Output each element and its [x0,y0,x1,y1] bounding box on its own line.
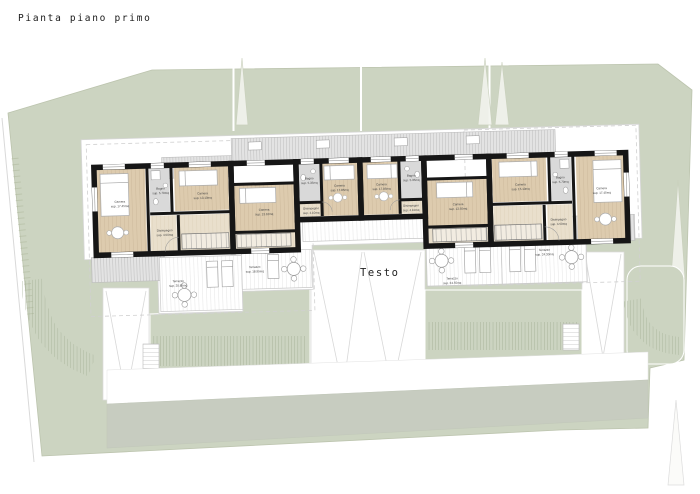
exterior-stairs [563,324,579,350]
chair [438,248,444,254]
chair [182,302,188,308]
chair [300,266,306,272]
lounger [524,243,536,271]
chair [281,266,287,272]
toilet [563,187,568,194]
window [329,158,349,164]
terrace-e: Terrazzo sup. 24.55mq [426,242,502,286]
exterior-stairs [143,344,159,370]
room-area: sup. 5.35mq [403,178,420,182]
room-area: sup. 4.50mq [156,233,173,237]
stair-flight [182,233,229,249]
skylight [316,140,329,148]
window [591,238,613,244]
room-area: sup. 17.45mq [593,190,612,195]
center-placeholder-label: Testo [360,267,400,279]
table [178,288,191,301]
floor-plan-canvas: Terrazzo sup. 20.85mq Terrazzo sup. 18.9… [0,0,700,494]
chair [389,194,393,198]
chair [124,230,129,235]
table [599,213,611,225]
bed [239,187,275,203]
room-area: sup. 17.85mq [330,188,349,193]
window [301,159,314,164]
bed [367,164,397,179]
window [251,248,269,254]
window [92,187,98,211]
chair [291,275,297,281]
window [455,154,473,160]
window [151,163,164,168]
window [455,242,473,248]
skylight [466,136,479,144]
lounger [207,261,219,287]
floor-plan-drawing: Terrazzo sup. 20.85mq Terrazzo sup. 18.9… [0,0,700,494]
chair [107,231,112,236]
stairs-steps [563,324,579,350]
shower [560,159,569,168]
room-area: sup. 5.70mq [552,180,569,184]
terrace-b: Terrazzo sup. 18.95mq [241,249,312,289]
table [333,193,342,202]
bed [499,161,537,177]
chair [439,267,445,273]
room-area: sup. 17.85mq [372,187,391,192]
roof-hatch-left-low [91,255,165,282]
chair [595,217,600,222]
chair [375,194,379,198]
bed [436,182,472,198]
window [595,150,617,156]
window [406,156,419,161]
chair [191,292,197,298]
lounger [479,244,491,272]
window [555,152,568,157]
room-area: sup. 5.70mq [152,191,169,195]
window [247,160,265,166]
room-area: sup. 24.30mq [535,252,554,257]
garden-embankment [428,322,579,350]
table [112,227,124,239]
room-area: sup. 4.10mq [403,208,420,212]
chair [448,258,454,264]
room-area: sup. 4.50mq [550,222,567,226]
sink [405,166,410,171]
lounger [222,261,234,287]
toilet [153,198,158,205]
window [103,164,125,170]
chair [329,196,333,200]
bed [179,170,217,186]
bed [593,160,622,203]
chair [429,258,435,264]
terrace-a: Terrazzo sup. 20.85mq [159,255,242,311]
chair [291,257,297,263]
lounger [509,244,521,272]
room-area: sup. 17.45mq [111,204,130,209]
table [435,254,448,267]
chair [172,292,178,298]
bed [324,165,354,180]
skylight [248,142,261,150]
chair [569,264,575,270]
table [287,262,300,275]
window [111,252,133,258]
lounger [267,254,279,278]
room-area: sup. 13.50mq [449,206,468,211]
sink [311,169,316,174]
stair-flight [237,233,291,248]
shower [151,171,160,180]
stairs-steps [143,344,159,370]
stair-flight [495,224,542,240]
room-area: sup. 13.10mq [194,196,213,201]
tree-marker [668,400,684,485]
room-area: sup. 13.10mq [255,212,274,217]
lounger [464,245,476,273]
window [507,153,529,159]
garden-embankment [153,336,307,366]
skylight [394,138,407,146]
bed [100,173,129,216]
chair [568,245,574,251]
room-area: sup. 18.95mq [246,269,265,274]
table [379,192,388,201]
stair-flight [433,227,487,242]
room-area: sup. 20.85mq [169,283,188,288]
chair [578,254,584,260]
room-area: sup. 24.55mq [443,281,462,286]
window [189,162,211,168]
table [565,250,578,263]
room-area: sup. 15.10mq [511,187,530,192]
window [624,172,630,196]
room-area: sup. 4.10mq [303,211,320,215]
window [371,157,391,163]
chair [559,255,565,261]
room-area: sup. 5.35mq [301,181,318,185]
chair [343,195,347,199]
page-title: Pianta piano primo [18,13,152,24]
chair [612,216,617,221]
